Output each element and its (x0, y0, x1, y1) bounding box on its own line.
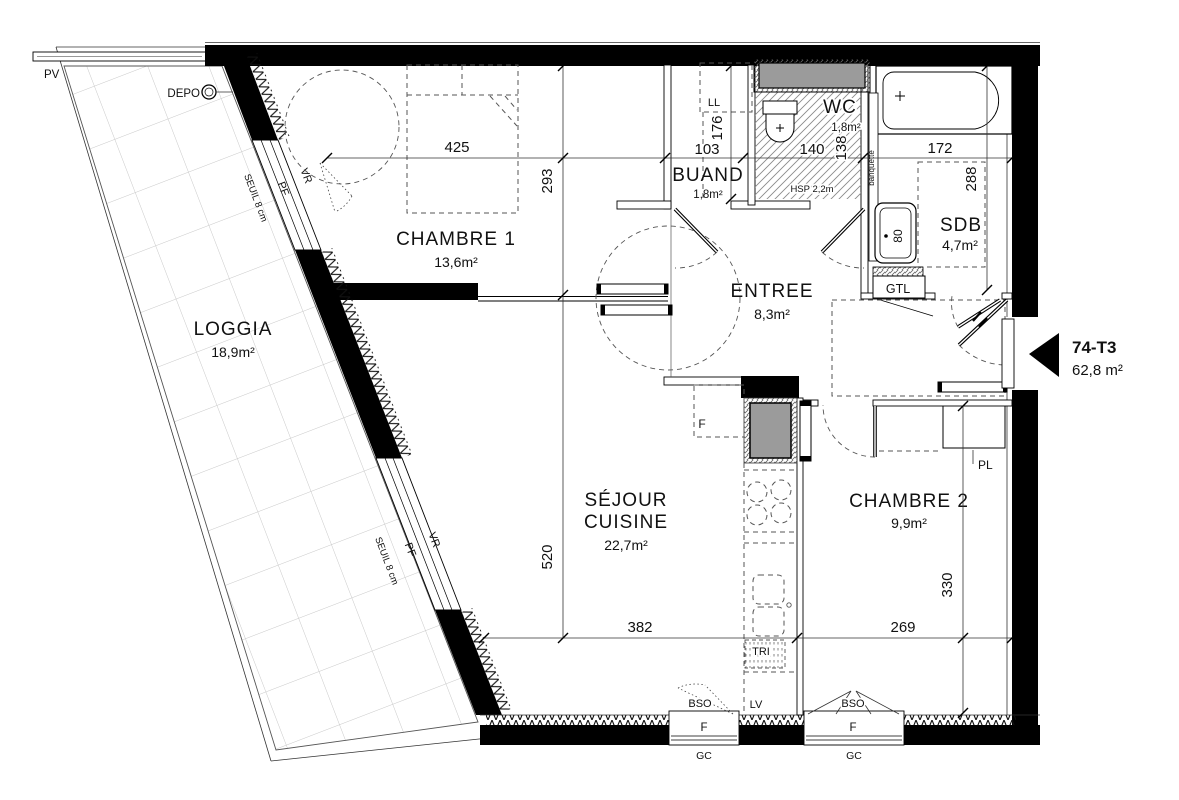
duct-black (741, 376, 799, 398)
hsp-label: HSP 2,2m (790, 184, 833, 195)
chambre2-door-swing (823, 405, 875, 457)
sliding-leaf-cap (664, 284, 668, 294)
wc-top-unit (759, 63, 865, 88)
dim-buand-w: 103 (694, 141, 719, 158)
dim-sdb-h: 288 (963, 166, 980, 191)
sejour-area: 22,7m² (604, 537, 648, 553)
window-sejour-label: F (700, 722, 707, 734)
sliding-leaf-cap (800, 401, 811, 406)
buand-door-swing (675, 252, 717, 268)
bed-fold-2 (505, 96, 517, 110)
wall-stub-chambre1 (617, 201, 671, 209)
wc-name: WC (823, 97, 857, 118)
bed-fold-1 (490, 96, 517, 126)
pv-label: PV (44, 69, 60, 81)
cooktop-burner-4 (771, 503, 791, 523)
cooktop-burner-1 (747, 482, 767, 502)
dim-chambre2-w: 269 (890, 619, 915, 636)
cooktop-burner-3 (747, 505, 767, 525)
dim-buand-h: 176 (709, 115, 726, 140)
chambre1-zone: CHAMBRE 1 13,6m² (285, 65, 518, 270)
sejour-name-2: CUISINE (584, 512, 668, 533)
sliding-leaf-duct (800, 401, 811, 461)
chambre1-area: 13,6m² (434, 254, 478, 270)
sliding-leaf-cap (800, 456, 811, 461)
cooktop-burner-2 (771, 480, 791, 500)
chambre2-zone: PL CHAMBRE 2 9,9m² (849, 406, 1005, 531)
lv-label: LV (750, 699, 763, 711)
pl-closet (943, 406, 1005, 448)
gtl-label: GTL (886, 282, 910, 296)
entrance-door-frame (1002, 319, 1014, 388)
turning-circle-entree (596, 226, 740, 370)
vr-fan-1 (320, 163, 352, 212)
wall-top (205, 45, 1040, 66)
sink-bowl-2 (753, 607, 784, 636)
buand-area: 1,8m² (693, 189, 723, 201)
depo-symbol (202, 85, 216, 99)
wall-entree-cuisine (664, 377, 745, 385)
vr-label-1: VR (297, 167, 314, 186)
loggia-name: LOGGIA (194, 319, 273, 340)
sdb-zone: banquette 80 SDB 4,7m² GTL (867, 66, 1012, 316)
unit-code: 74-T3 (1072, 338, 1116, 357)
duct-gray (750, 403, 791, 458)
turning-circle-chambre1 (285, 70, 399, 184)
entrance-door-swing (959, 345, 1007, 365)
bso-label-1: BSO (688, 698, 712, 710)
gc-label-1: GC (696, 750, 712, 762)
gtl-cap (873, 267, 923, 276)
sliding-leaf-wardrobe (938, 382, 1007, 392)
buand-door-leaf-inner (675, 209, 717, 252)
entree-name: ENTREE (730, 281, 813, 302)
wc-zone: WC 1,8m² HSP 2,2m (754, 59, 870, 199)
dim-chambre1-w: 425 (444, 139, 469, 156)
dim-wc-h: 138 (833, 135, 850, 160)
fridge-label: F (698, 417, 705, 431)
dim-chambre1-h: 293 (539, 168, 556, 193)
floor-plan-drawing: PV DEPO LOGGIA 18,9m² SEUIL 8 cm PF (0, 0, 1179, 800)
unit-area: 62,8 m² (1072, 362, 1123, 379)
wall-bottom (480, 725, 1040, 745)
bso-label-2: BSO (841, 698, 865, 710)
basin-width: 80 (891, 229, 905, 243)
chambre1-sliding-leaf-1 (597, 284, 668, 294)
loggia-area: 18,9m² (211, 344, 255, 360)
chambre1-sliding-leaf-2 (601, 305, 672, 315)
entree-area: 8,3m² (754, 306, 790, 322)
dim-wc-w: 140 (799, 141, 824, 158)
pl-label: PL (978, 458, 993, 472)
tri-label: TRI (752, 646, 770, 658)
floor-plan-page: PV DEPO LOGGIA 18,9m² SEUIL 8 cm PF (0, 0, 1179, 800)
wall-buand-wc-bottom (731, 201, 810, 209)
wall-right-lower (1012, 390, 1038, 745)
sejour-name-1: SÉJOUR (584, 490, 667, 511)
entrance-arrow-icon (1029, 333, 1059, 377)
wc-door-swing (822, 252, 864, 268)
sliding-leaf-cap (668, 305, 672, 315)
dim-sdb-w: 172 (927, 140, 952, 157)
wall-chambre1-buand (664, 65, 671, 209)
banquette-label: banquette (867, 150, 876, 186)
sink-bowl-1 (753, 575, 784, 604)
wall-chambre2-top-right (873, 400, 1012, 406)
window-chambre2-label: F (849, 722, 856, 734)
chambre2-area: 9,9m² (891, 515, 927, 531)
wc-door-leaf-inner (822, 209, 864, 252)
wall-sdb-bottom-right (1002, 293, 1012, 299)
ll-label: LL (708, 97, 720, 109)
dim-sejour-h: 520 (539, 544, 556, 569)
unit-callout: 74-T3 62,8 m² (1029, 333, 1123, 379)
sliding-leaf-cap (601, 305, 605, 315)
sink-faucet (787, 603, 791, 607)
sejour-cuisine-zone: F TRI LV SÉJOUR CUISINE 22,7m² (584, 376, 811, 713)
dim-sejour-w: 382 (627, 619, 652, 636)
sdb-area: 4,7m² (942, 237, 978, 253)
wc-area: 1,8m² (831, 122, 861, 134)
chambre1-name: CHAMBRE 1 (396, 229, 516, 250)
gtl-door-line (877, 299, 933, 316)
depo-label: DEPO (167, 88, 200, 100)
gc-label-2: GC (846, 750, 862, 762)
sdb-name: SDB (940, 215, 982, 236)
chambre2-name: CHAMBRE 2 (849, 491, 969, 512)
dim-chambre2-h: 330 (939, 572, 956, 597)
wall-right-upper (1012, 45, 1038, 317)
washbasin-drain (884, 234, 888, 238)
toilet-cistern (763, 101, 797, 114)
sliding-leaf-cap (597, 284, 601, 294)
sliding-leaf-cap (938, 382, 942, 392)
sdb-door-swing (952, 296, 958, 327)
buand-name: BUAND (672, 165, 744, 186)
